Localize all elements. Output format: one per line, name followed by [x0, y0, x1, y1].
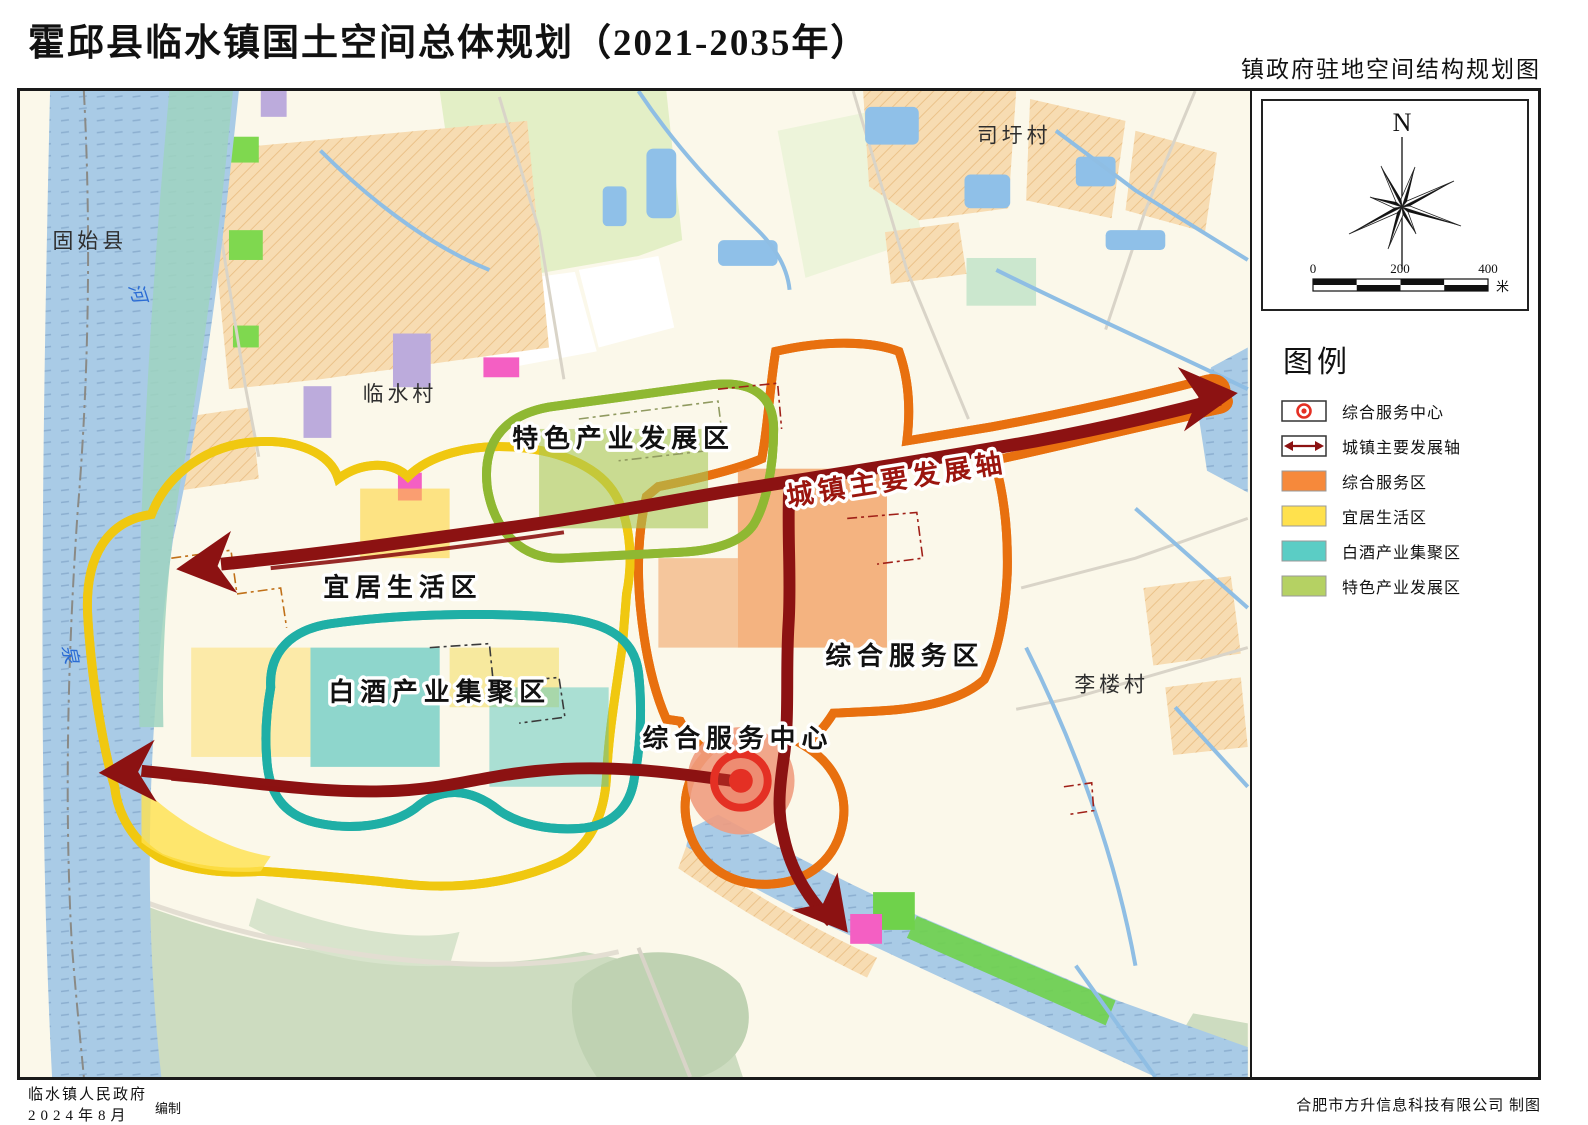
- planning-map: 特色产业发展区 宜居生活区 白酒产业集聚区 综合服务区 综合服务中心 城镇主要发…: [20, 91, 1250, 1077]
- legend-item-service-center: 综合服务中心: [1281, 399, 1521, 423]
- page-subtitle: 镇政府驻地空间结构规划图: [1241, 50, 1541, 84]
- scale-tick-200: 200: [1390, 261, 1410, 276]
- service-center-symbol: [714, 754, 768, 808]
- label-linshui-village: 临水村: [363, 382, 438, 406]
- label-west-county: 固始县: [53, 229, 128, 253]
- map-canvas: 特色产业发展区 宜居生活区 白酒产业集聚区 综合服务区 综合服务中心 城镇主要发…: [20, 91, 1252, 1077]
- side-panel: N 0 200 400: [1252, 91, 1538, 1077]
- compile-date: 2024年8月: [28, 1104, 147, 1125]
- label-siwei-village: 司圩村: [977, 124, 1052, 148]
- legend-label: 特色产业发展区: [1342, 574, 1461, 598]
- scale-tick-0: 0: [1310, 261, 1317, 276]
- legend: 图例 综合服务中心 城镇主要发展轴: [1261, 311, 1529, 598]
- legend-item-dev-axis: 城镇主要发展轴: [1281, 434, 1521, 458]
- label-service-zone: 综合服务区: [825, 641, 984, 671]
- legend-label: 宜居生活区: [1342, 504, 1427, 528]
- compiler-credit: 临水镇人民政府 2024年8月 编制: [28, 1083, 181, 1125]
- label-lilou-village: 李楼村: [1074, 672, 1149, 696]
- label-baijiu-zone: 白酒产业集聚区: [328, 676, 551, 706]
- double-arrow-icon: [1281, 435, 1327, 457]
- legend-item-livable-zone: 宜居生活区: [1281, 504, 1521, 528]
- page-title: 霍邱县临水镇国土空间总体规划（2021-2035年）: [28, 12, 869, 66]
- legend-label: 城镇主要发展轴: [1342, 434, 1461, 458]
- map-frame: 特色产业发展区 宜居生活区 白酒产业集聚区 综合服务区 综合服务中心 城镇主要发…: [17, 88, 1541, 1080]
- legend-item-baijiu-zone: 白酒产业集聚区: [1281, 539, 1521, 563]
- livable-zone-swatch: [1281, 505, 1327, 527]
- cartography-credit: 合肥市方升信息科技有限公司 制图: [1296, 1094, 1541, 1115]
- legend-title: 图例: [1283, 337, 1521, 381]
- compiler-org: 临水镇人民政府: [28, 1083, 147, 1104]
- legend-label: 白酒产业集聚区: [1342, 539, 1461, 563]
- label-special-industry-zone: 特色产业发展区: [512, 423, 735, 453]
- baijiu-zone-swatch: [1281, 540, 1327, 562]
- compass-scale: N 0 200 400: [1263, 101, 1527, 305]
- compiler-role: 编制: [155, 1098, 181, 1117]
- bullseye-icon: [1281, 400, 1327, 422]
- label-service-center: 综合服务中心: [642, 723, 833, 753]
- special-zone-swatch: [1281, 575, 1327, 597]
- legend-item-service-zone: 综合服务区: [1281, 469, 1521, 493]
- legend-label: 综合服务区: [1342, 469, 1427, 493]
- service-zone-swatch: [1281, 470, 1327, 492]
- legend-label: 综合服务中心: [1342, 399, 1444, 423]
- label-livable-zone: 宜居生活区: [323, 572, 482, 602]
- scale-tick-400: 400: [1478, 261, 1498, 276]
- north-label: N: [1393, 108, 1412, 137]
- scale-bar: 0 200 400 米: [1310, 261, 1509, 294]
- scale-unit: 米: [1496, 279, 1509, 294]
- legend-item-special-zone: 特色产业发展区: [1281, 574, 1521, 598]
- compass-rose-icon: [1349, 166, 1461, 249]
- north-scale-box: N 0 200 400: [1261, 99, 1529, 311]
